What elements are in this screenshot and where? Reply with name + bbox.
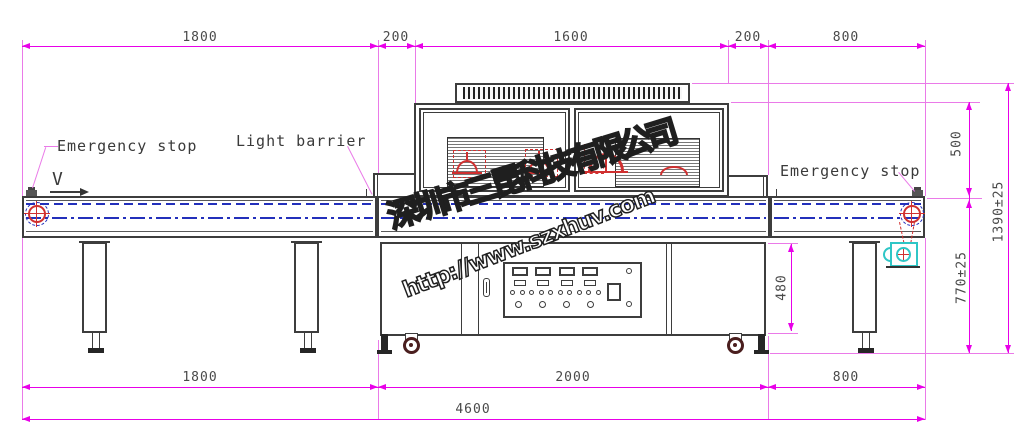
panel-main-switch bbox=[607, 283, 621, 301]
panel-display bbox=[559, 267, 575, 276]
dim-bottom-800: 800 bbox=[816, 370, 876, 385]
emergency-stop-icon bbox=[26, 190, 37, 196]
arrowhead bbox=[788, 244, 794, 252]
panel-small-button bbox=[548, 290, 553, 295]
arrowhead bbox=[22, 416, 30, 422]
arrowhead bbox=[378, 384, 386, 390]
exit-shelf-post bbox=[763, 177, 764, 196]
entry-shelf-post bbox=[373, 173, 375, 196]
direction-arrow-shaft bbox=[50, 191, 80, 193]
conveyor-leg bbox=[852, 242, 877, 333]
dim-bottom-2000: 2000 bbox=[543, 370, 603, 385]
arrowhead bbox=[1005, 345, 1011, 353]
uv-lamp-stem bbox=[466, 152, 468, 162]
panel-button bbox=[539, 301, 546, 308]
arrowhead bbox=[768, 384, 776, 390]
panel-window bbox=[537, 280, 549, 286]
leader-line bbox=[347, 146, 372, 195]
dim-line-overall bbox=[22, 419, 925, 420]
leg-stem bbox=[304, 332, 312, 349]
leveling-foot bbox=[381, 334, 388, 351]
arrowhead bbox=[966, 200, 972, 208]
dim-line-cabinet-height bbox=[791, 244, 792, 331]
cabinet-divider bbox=[666, 243, 667, 335]
pulley-crosshair bbox=[911, 201, 912, 227]
panel-window bbox=[514, 280, 526, 286]
cabinet-divider bbox=[671, 243, 672, 335]
arrowhead bbox=[966, 102, 972, 110]
arrowhead bbox=[966, 345, 972, 353]
dim-line-right bbox=[969, 102, 970, 353]
emergency-stop-right-label: Emergency stop bbox=[780, 162, 920, 180]
belt-center-line bbox=[774, 217, 921, 219]
foot-pad bbox=[88, 348, 104, 353]
panel-indicator bbox=[626, 268, 632, 274]
conveyor-leg bbox=[82, 242, 107, 333]
leveling-foot bbox=[758, 334, 765, 351]
entry-shelf-post bbox=[377, 175, 378, 196]
dim-right-500: 500 bbox=[950, 124, 965, 164]
panel-small-button bbox=[539, 290, 544, 295]
leader-line bbox=[32, 147, 46, 188]
dim-cabinet-480: 480 bbox=[775, 268, 790, 308]
direction-arrowhead bbox=[80, 188, 89, 196]
panel-window bbox=[561, 280, 573, 286]
belt-rail-line bbox=[26, 231, 373, 232]
panel-button bbox=[587, 301, 594, 308]
belt-center-line bbox=[26, 217, 373, 219]
pulley-crosshair bbox=[899, 213, 925, 214]
arrowhead bbox=[966, 188, 972, 196]
dim-top-200-right: 200 bbox=[718, 30, 778, 45]
caster-hub bbox=[409, 343, 413, 347]
arrowhead bbox=[370, 384, 378, 390]
leg-stem bbox=[862, 332, 870, 349]
vent-grille bbox=[463, 87, 682, 99]
panel-window bbox=[584, 280, 596, 286]
belt-edge-line bbox=[26, 203, 373, 205]
emergency-stop-left-label: Emergency stop bbox=[57, 137, 197, 155]
foot-pad bbox=[377, 350, 392, 354]
dim-top-800: 800 bbox=[816, 30, 876, 45]
arrowhead bbox=[760, 384, 768, 390]
foot-pad bbox=[754, 350, 769, 354]
ext-line bbox=[378, 40, 379, 174]
arrowhead bbox=[22, 43, 30, 49]
dim-right-770: 770±25 bbox=[955, 248, 970, 308]
uv-conveyor-drawing: 1800 200 1600 200 800 1800 2000 800 4600… bbox=[0, 0, 1023, 433]
motor-terminal-box bbox=[883, 247, 892, 262]
drive-pulley bbox=[28, 205, 46, 223]
arrowhead bbox=[788, 323, 794, 331]
arrowhead bbox=[917, 384, 925, 390]
panel-small-button bbox=[586, 290, 591, 295]
pulley-crosshair bbox=[36, 201, 37, 227]
dim-overall-4600: 4600 bbox=[443, 402, 503, 417]
dim-line-total-height bbox=[1008, 83, 1009, 353]
ext-line bbox=[927, 198, 982, 199]
motor-crosshair bbox=[903, 249, 904, 260]
conveyor-infeed bbox=[22, 196, 377, 238]
panel-display bbox=[535, 267, 551, 276]
dim-top-200-left: 200 bbox=[366, 30, 426, 45]
panel-small-button bbox=[520, 290, 525, 295]
ext-line bbox=[768, 40, 769, 175]
ext-line bbox=[925, 238, 926, 420]
panel-small-button bbox=[510, 290, 515, 295]
panel-indicator bbox=[626, 301, 632, 307]
dim-line-top bbox=[22, 46, 925, 47]
ext-line bbox=[731, 102, 980, 103]
ext-line bbox=[768, 336, 769, 420]
belt-edge-line bbox=[774, 203, 921, 205]
panel-small-button bbox=[558, 290, 563, 295]
exit-bracket bbox=[768, 196, 777, 197]
ext-line bbox=[692, 83, 1014, 84]
drive-pulley bbox=[903, 205, 921, 223]
pulley-crosshair bbox=[24, 213, 50, 214]
dim-line-bottom bbox=[22, 387, 925, 388]
arrowhead bbox=[917, 43, 925, 49]
belt-rail-line bbox=[26, 200, 373, 201]
dim-top-1600: 1600 bbox=[541, 30, 601, 45]
dim-bottom-1800: 1800 bbox=[170, 370, 230, 385]
panel-small-button bbox=[577, 290, 582, 295]
exit-shelf-post bbox=[766, 175, 768, 196]
panel-button bbox=[563, 301, 570, 308]
belt-rail-line bbox=[774, 200, 921, 201]
ext-line bbox=[770, 353, 1014, 354]
foot-pad bbox=[858, 348, 874, 353]
panel-display bbox=[512, 267, 528, 276]
light-barrier-bracket bbox=[366, 196, 375, 197]
panel-display bbox=[582, 267, 598, 276]
ext-line bbox=[925, 40, 926, 196]
ext-line bbox=[768, 333, 798, 334]
door-handle-line bbox=[486, 282, 487, 293]
panel-small-button bbox=[529, 290, 534, 295]
arrowhead bbox=[22, 384, 30, 390]
leg-stem bbox=[92, 332, 100, 349]
arrowhead bbox=[1005, 83, 1011, 91]
motor-base bbox=[886, 266, 920, 268]
entry-shelf bbox=[373, 173, 415, 175]
panel-small-button bbox=[596, 290, 601, 295]
conveyor-leg bbox=[294, 242, 319, 333]
foot-pad bbox=[300, 348, 316, 353]
panel-small-button bbox=[567, 290, 572, 295]
belt-rail-line bbox=[774, 231, 921, 232]
exhaust-vent bbox=[455, 83, 690, 103]
panel-button bbox=[515, 301, 522, 308]
direction-label: V bbox=[52, 169, 64, 190]
dim-top-1800: 1800 bbox=[170, 30, 230, 45]
caster-hub bbox=[733, 343, 737, 347]
dim-right-1390: 1390±25 bbox=[992, 177, 1007, 247]
arrowhead bbox=[917, 416, 925, 422]
ext-line bbox=[415, 40, 416, 103]
